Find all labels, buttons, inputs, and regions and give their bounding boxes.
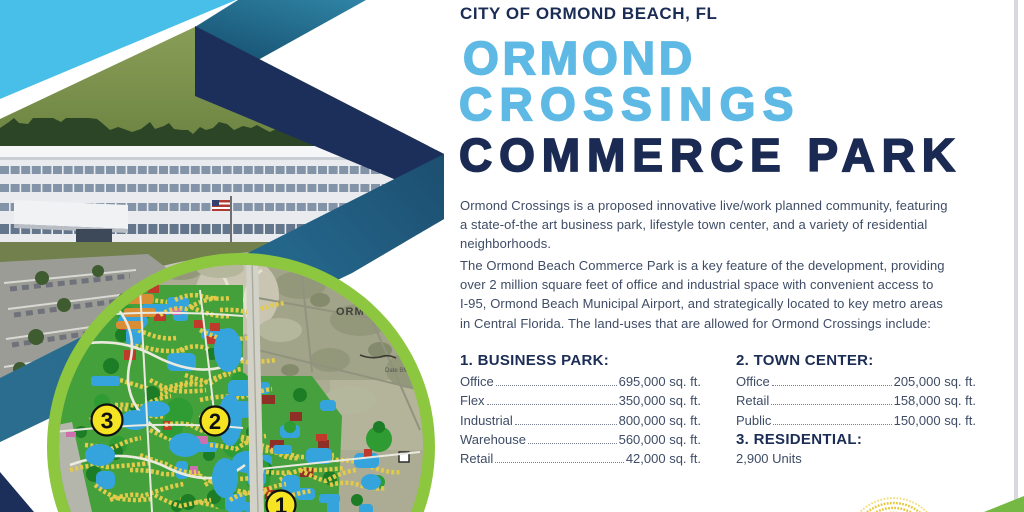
- svg-text:1: 1: [275, 493, 287, 512]
- svg-text:2: 2: [209, 409, 221, 434]
- svg-text:3: 3: [101, 408, 114, 434]
